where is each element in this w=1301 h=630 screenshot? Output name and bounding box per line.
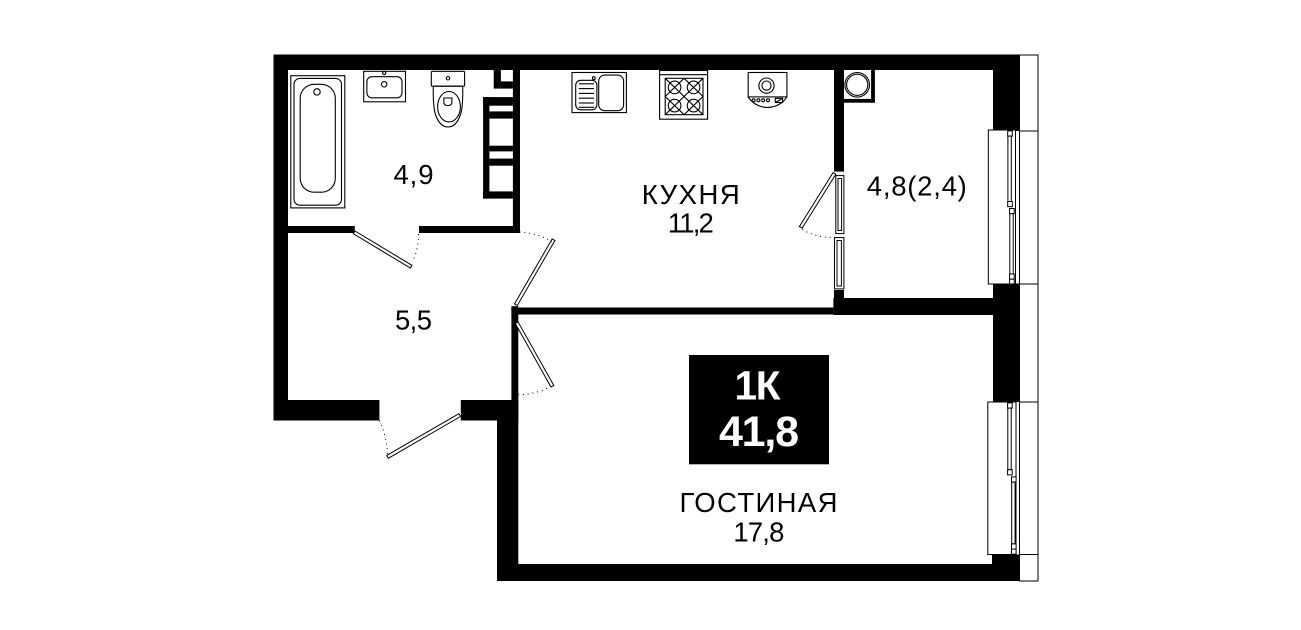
svg-text:41,8: 41,8 [719,408,799,456]
svg-text:1К: 1К [735,363,781,409]
svg-text:4,9: 4,9 [394,159,434,190]
svg-text:КУХНЯ: КУХНЯ [642,179,740,210]
svg-text:ГОСТИНАЯ: ГОСТИНАЯ [680,487,838,518]
svg-text:5,5: 5,5 [395,305,432,336]
svg-text:11,2: 11,2 [668,207,714,238]
svg-text:17,8: 17,8 [733,517,784,548]
svg-text:4,8(2,4): 4,8(2,4) [867,171,967,202]
